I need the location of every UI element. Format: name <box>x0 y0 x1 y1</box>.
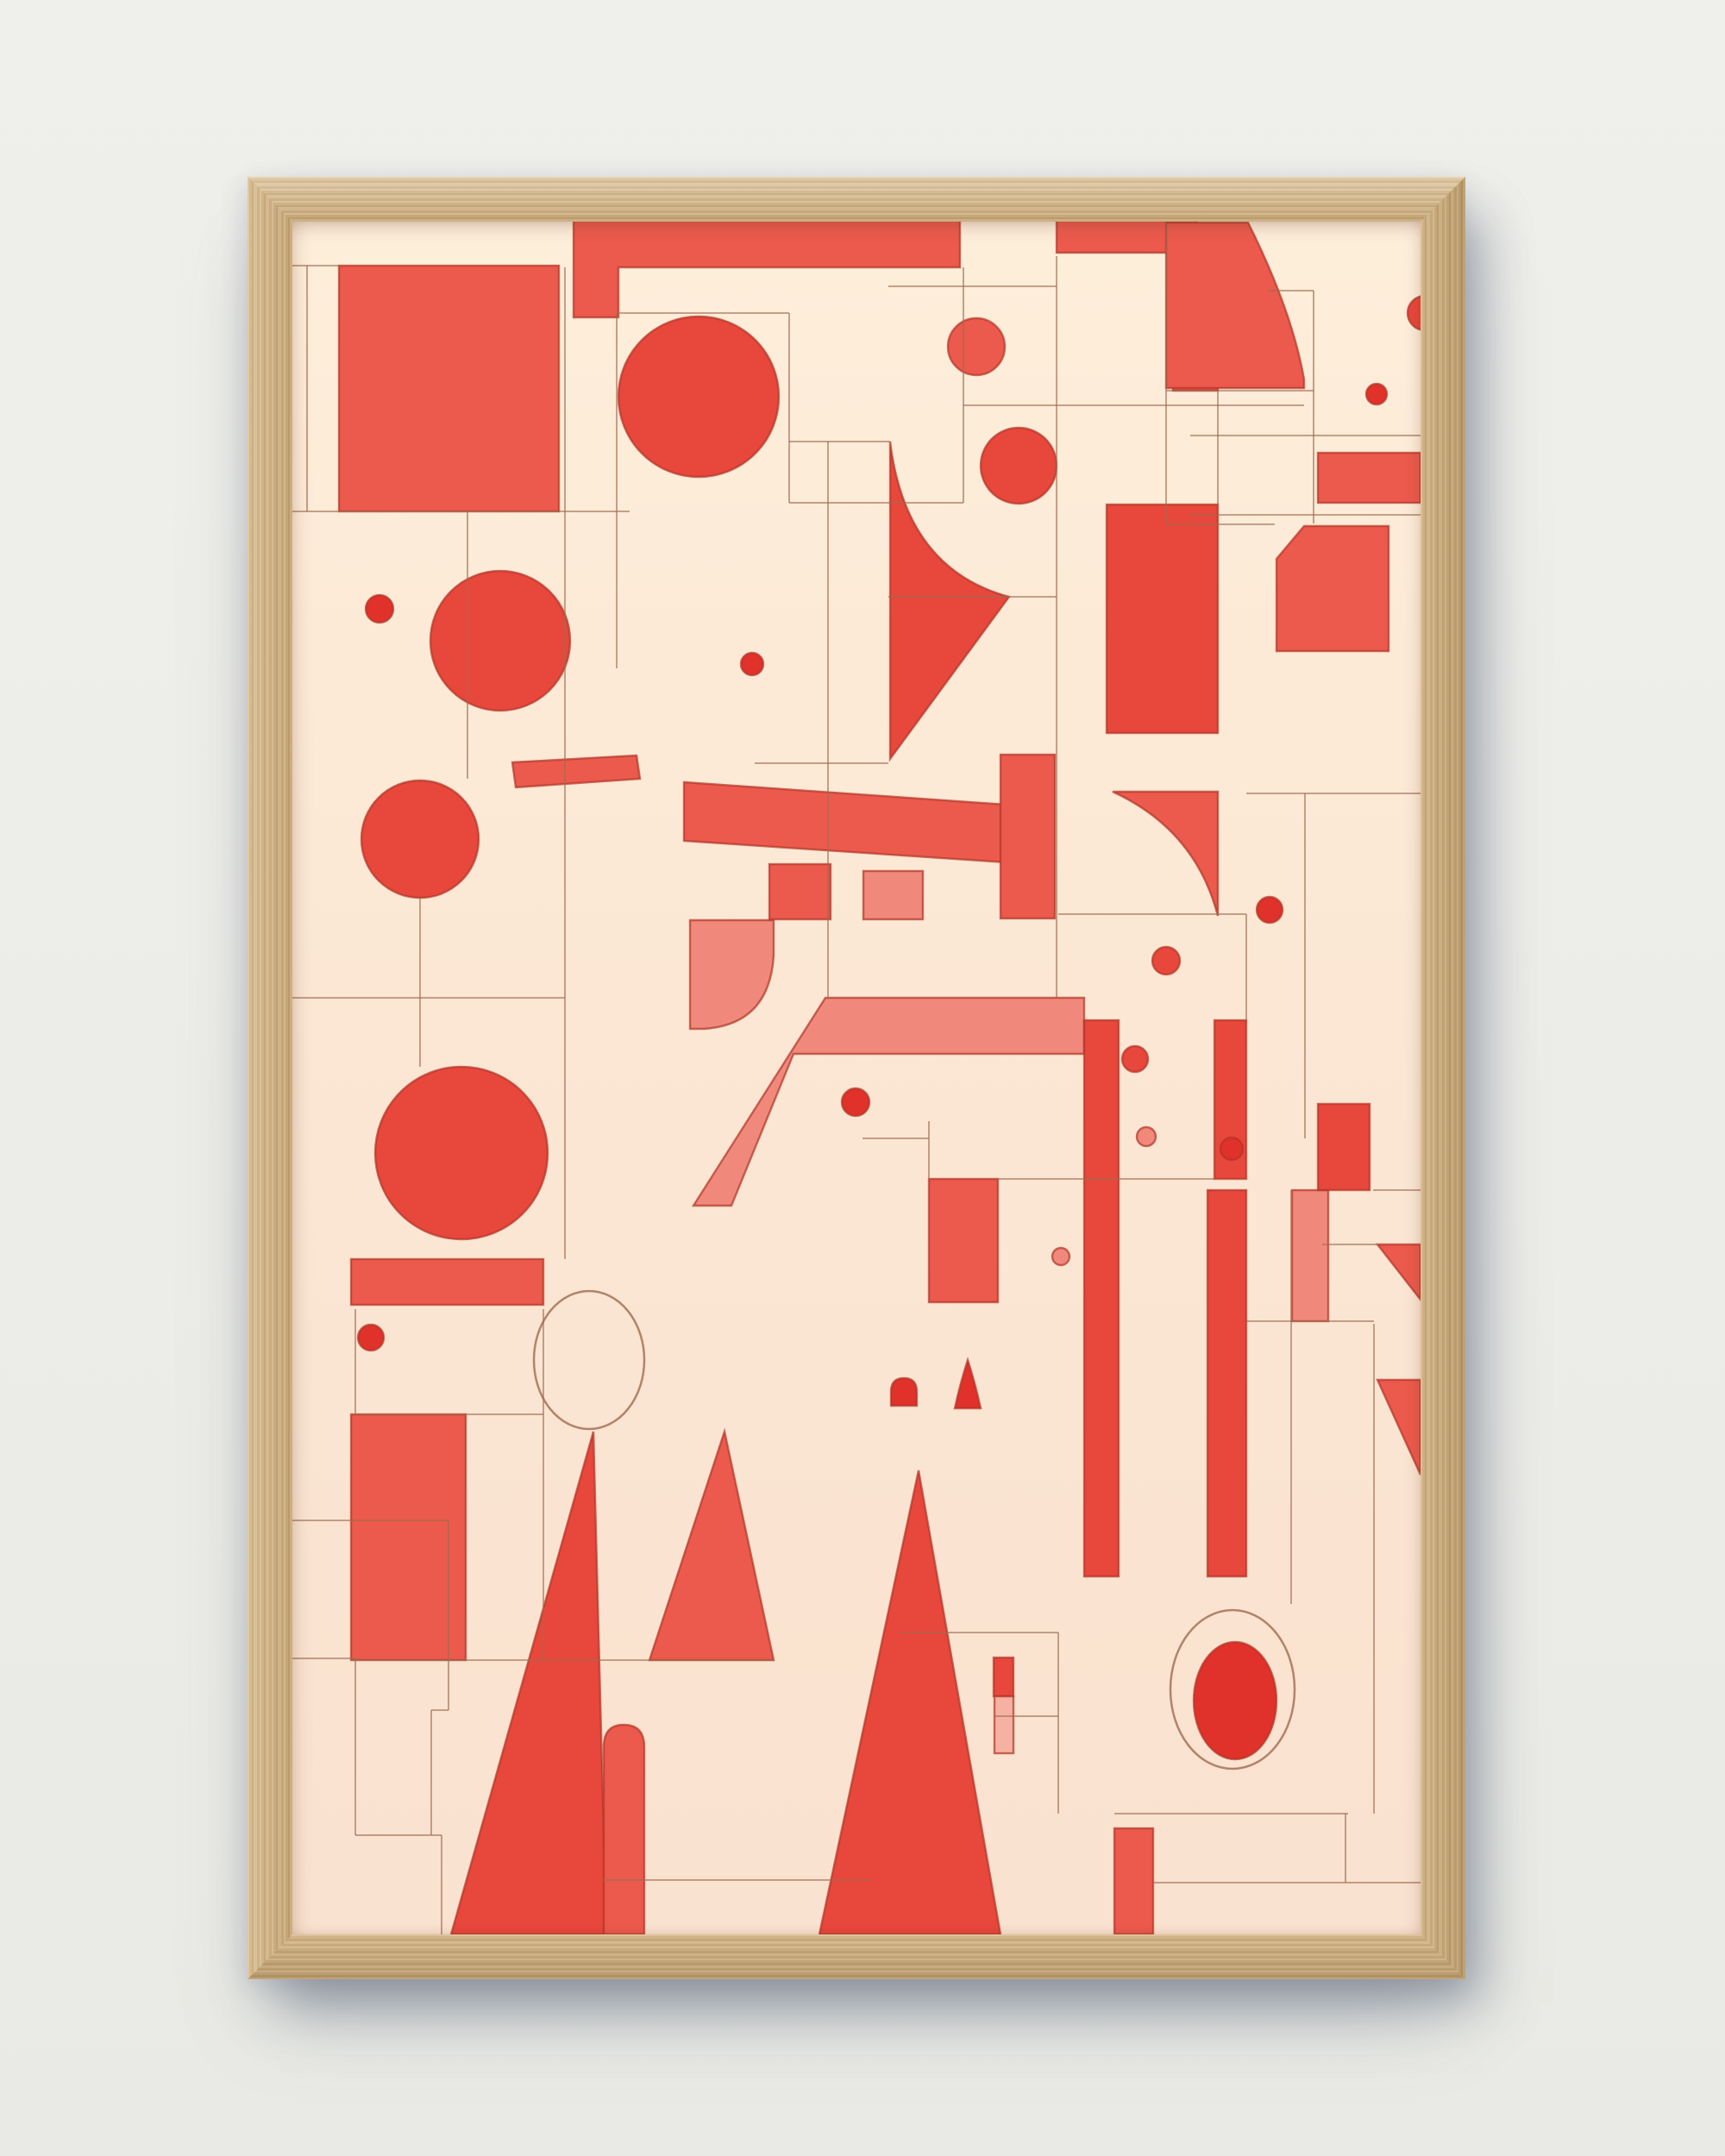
rect-tall-center <box>929 1179 998 1302</box>
abstract-composition <box>292 222 1421 1934</box>
circle-large-top <box>618 317 779 477</box>
block-right <box>1276 526 1389 651</box>
bar-right-top <box>1318 453 1421 503</box>
circle-small-a <box>948 318 1005 375</box>
header-left <box>351 1259 543 1305</box>
dot-right-b <box>1152 947 1180 975</box>
dot-right-e <box>1052 1248 1069 1265</box>
dot-right-c <box>1122 1046 1148 1072</box>
rect-small-a <box>769 864 831 919</box>
circle-small-b <box>981 428 1057 504</box>
dot-right-f <box>1220 1138 1243 1160</box>
triangle-large <box>819 1470 1000 1934</box>
wedge-right-b <box>1377 1380 1421 1475</box>
semicircle-frame-edge <box>1408 296 1421 330</box>
bar-right-small <box>1318 1104 1370 1190</box>
art-print <box>292 222 1421 1934</box>
arch-column <box>604 1725 644 1934</box>
frame-right-rail <box>1421 177 1465 1979</box>
curved-triangle-right <box>1113 792 1218 916</box>
cone-small <box>955 1360 981 1408</box>
strip-slanted <box>512 755 640 787</box>
column-right <box>1207 1190 1246 1576</box>
square-topleft <box>339 266 559 511</box>
wedge-right-a <box>1377 1244 1421 1300</box>
circle-large-left <box>375 1067 548 1239</box>
block-center-right <box>1107 505 1218 733</box>
picture-frame <box>248 177 1465 1979</box>
egg-bottom-right <box>1194 1642 1276 1759</box>
dot-right-d <box>1137 1127 1156 1146</box>
frame-left-rail <box>248 177 292 1979</box>
bar-vertical-long <box>1084 1020 1119 1576</box>
dot-right-a <box>1257 897 1283 923</box>
rect-small-b <box>863 871 923 919</box>
dot-center-a <box>741 653 763 675</box>
bar-bottom-right <box>1114 1828 1153 1934</box>
dot-roof <box>842 1088 869 1116</box>
circle-mid-left <box>430 571 570 711</box>
bar-small-bottom-a <box>994 1658 1013 1696</box>
band-horizontal <box>684 782 1007 862</box>
dot-topright <box>1366 384 1387 404</box>
dot-left-a <box>366 595 393 623</box>
arch-block-left <box>690 920 774 1029</box>
rect-center-tall <box>1000 755 1055 918</box>
roof-band <box>693 998 1084 1206</box>
outline-circle <box>534 1291 644 1429</box>
circle-left <box>361 780 479 898</box>
band-L-top <box>574 222 960 317</box>
dome-small <box>891 1378 917 1406</box>
triangle-mid <box>649 1432 774 1660</box>
wall-background <box>0 0 1725 2156</box>
sail-triangle <box>451 1432 606 1934</box>
triangle-curved-topright <box>1166 222 1304 388</box>
frame-top-rail <box>248 177 1465 222</box>
dot-left-b <box>358 1325 384 1351</box>
bar-salmon-right <box>1292 1190 1328 1321</box>
frame-bottom-rail <box>248 1934 1465 1979</box>
bar-small-bottom-b <box>994 1696 1013 1753</box>
